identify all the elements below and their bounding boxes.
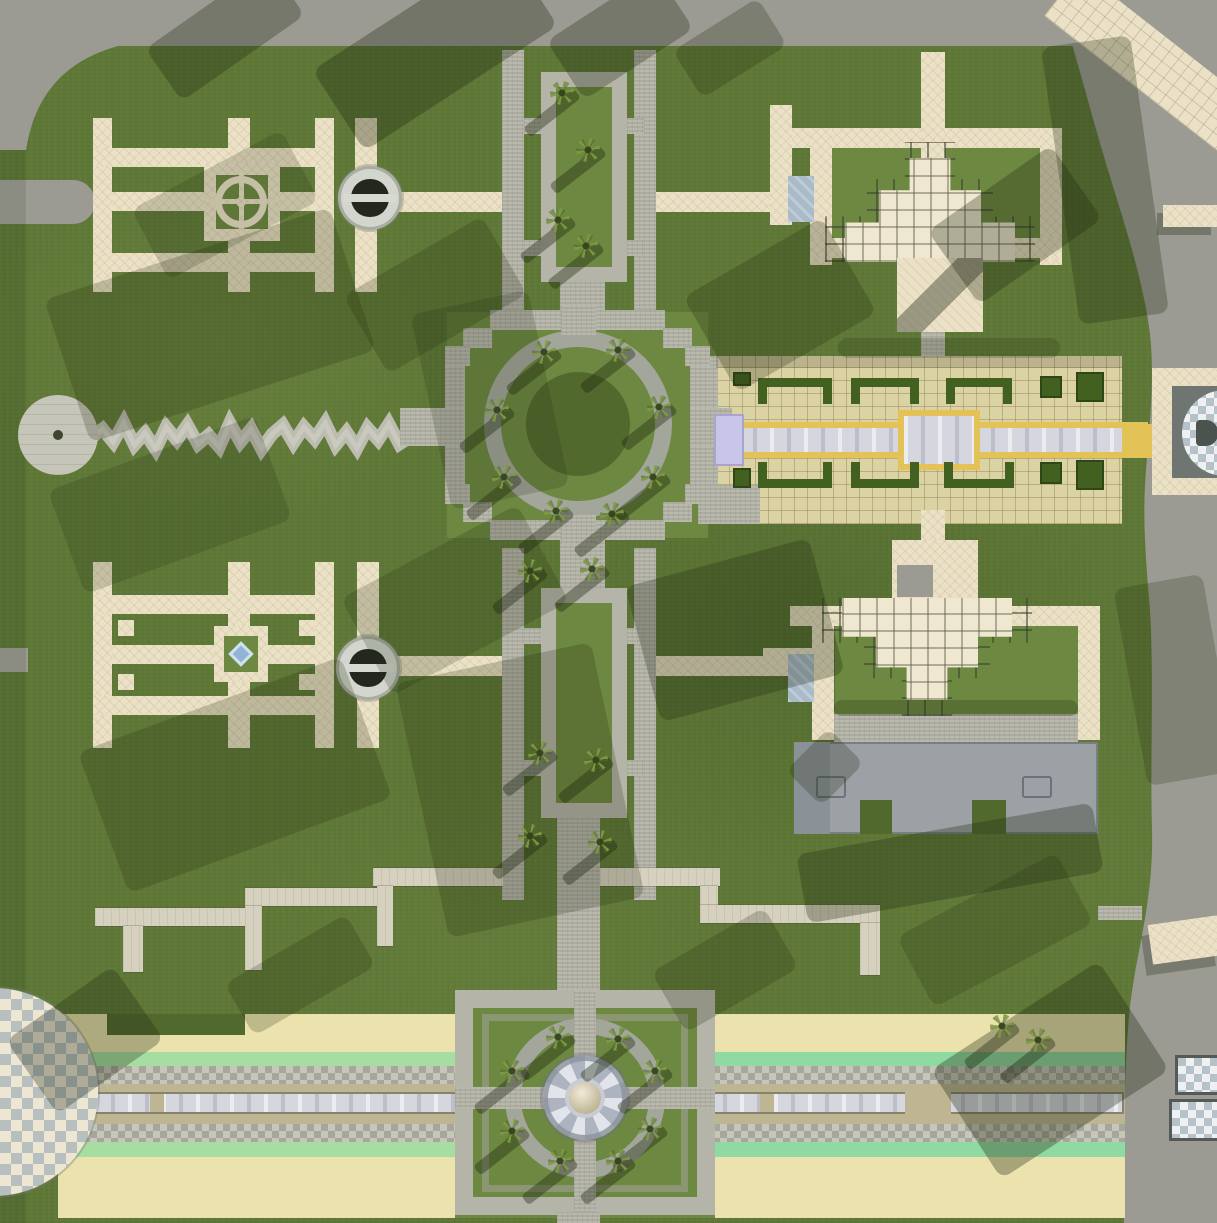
avenue-n-conn-e2 (627, 240, 644, 256)
plaza-entry-n (561, 305, 596, 335)
avenue-m-conn-w1 (524, 628, 541, 644)
palm-tree-25 (606, 1149, 630, 1173)
hedge-s-5 (758, 462, 832, 488)
stepped-path-segment-3 (245, 906, 262, 970)
palm-tree-12 (518, 559, 542, 583)
east-pool-extension (1122, 424, 1156, 458)
hedge-sq-8 (1040, 462, 1062, 484)
avenue-n-east-path (634, 50, 656, 312)
stream-circle-center-dot (53, 430, 63, 440)
hedge-s-6 (851, 462, 919, 488)
hedge-sq-3 (1040, 376, 1062, 398)
plaza-step-ne2 (685, 346, 710, 366)
east-disc-wedge (1196, 420, 1217, 446)
hedge-n-2 (946, 378, 1012, 404)
garden-sw-top-bar (93, 595, 334, 614)
palm-tree-6 (485, 398, 509, 422)
hedge-n-0 (758, 378, 832, 404)
pool-center-basin-water (904, 416, 974, 464)
garden-sw-corner-sq2 (299, 620, 315, 636)
palm-tree-22 (500, 1119, 524, 1143)
channel-pier-3 (905, 1092, 951, 1114)
sculpture-fountain-north (338, 166, 402, 230)
palm-tree-1 (576, 138, 600, 162)
palm-tree-3 (574, 234, 598, 258)
splaza-south-exit (557, 1212, 600, 1223)
shadow-patch-23 (838, 338, 1060, 358)
palm-tree-11 (600, 502, 624, 526)
stepped-path-segment-9 (860, 923, 880, 975)
palm-tree-0 (550, 81, 574, 105)
palm-tree-10 (544, 499, 568, 523)
stepped-path-segment-2 (245, 888, 380, 906)
stepped-path-segment-5 (377, 886, 393, 946)
palm-tree-7 (647, 395, 671, 419)
channel-pier-1 (150, 1094, 164, 1112)
crosswalk-2 (1172, 1102, 1217, 1138)
hedge-sq-11 (733, 468, 751, 488)
avenue-m-conn-e2 (627, 760, 644, 776)
palm-tree-16 (518, 824, 542, 848)
avenue-n-conn-e1 (627, 118, 644, 134)
building-notch-1 (860, 800, 892, 834)
palm-tree-20 (500, 1059, 524, 1083)
crosswalk-1 (1178, 1058, 1217, 1092)
se-frame-right (1078, 606, 1100, 740)
road-stub-east (1098, 906, 1142, 920)
channel-pier-2 (760, 1094, 774, 1112)
palm-tree-27 (1026, 1028, 1050, 1052)
park-map[interactable] (0, 0, 1217, 1223)
plaza-step-ne1 (663, 328, 692, 348)
palm-tree-13 (580, 557, 604, 581)
palm-tree-17 (588, 830, 612, 854)
path-p1-west (395, 192, 505, 212)
palm-tree-18 (546, 1025, 570, 1049)
palm-tree-4 (532, 340, 556, 364)
plaza-step-se1 (663, 502, 692, 522)
palm-tree-14 (528, 741, 552, 765)
palm-tree-9 (641, 465, 665, 489)
garden-sw-corner-sq3 (118, 674, 134, 690)
stepped-path-segment-7 (700, 886, 718, 906)
palm-tree-5 (606, 338, 630, 362)
se-pavilion-notch (897, 565, 933, 597)
roof-detail-2 (1022, 776, 1052, 798)
stepped-path-segment-0 (95, 908, 250, 926)
se-south-walk (834, 714, 1078, 742)
palm-tree-26 (990, 1014, 1014, 1038)
stepped-path-segment-1 (123, 926, 143, 972)
garden-sw-corner-sq1 (118, 620, 134, 636)
palm-tree-2 (546, 208, 570, 232)
palm-tree-15 (584, 748, 608, 772)
pool-lavender-landing (714, 414, 744, 466)
hedge-s-7 (944, 462, 1014, 488)
hedge-n-1 (851, 378, 919, 404)
palm-tree-8 (492, 465, 516, 489)
hedge-sq-4 (1076, 372, 1104, 402)
ne-blue-ramp (788, 176, 814, 222)
palm-tree-19 (606, 1027, 630, 1051)
promenade-mint-south-bright (700, 1142, 1125, 1157)
palm-tree-21 (643, 1059, 667, 1083)
palm-tree-23 (638, 1117, 662, 1141)
shadow-patch-24 (834, 700, 1078, 716)
palm-tree-24 (548, 1149, 572, 1173)
splaza-arm-n (574, 990, 596, 1060)
pool-court-sw-walk (700, 485, 760, 524)
road-rect-ne (1163, 205, 1217, 227)
hedge-sq-9 (1076, 460, 1104, 490)
